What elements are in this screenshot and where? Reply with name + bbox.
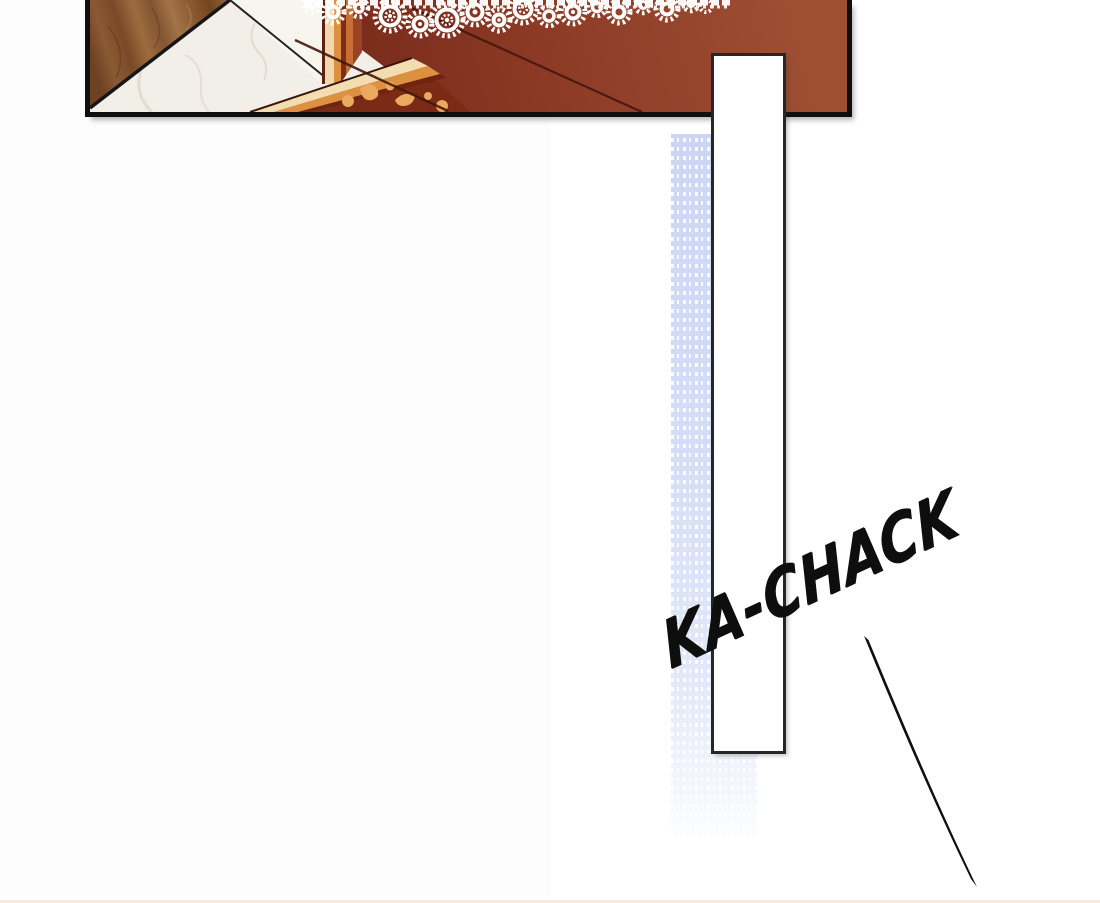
motion-speed-line [850, 625, 1000, 900]
page-background-left-region [0, 0, 551, 903]
page-canvas: KA-CHACK [0, 0, 1100, 903]
